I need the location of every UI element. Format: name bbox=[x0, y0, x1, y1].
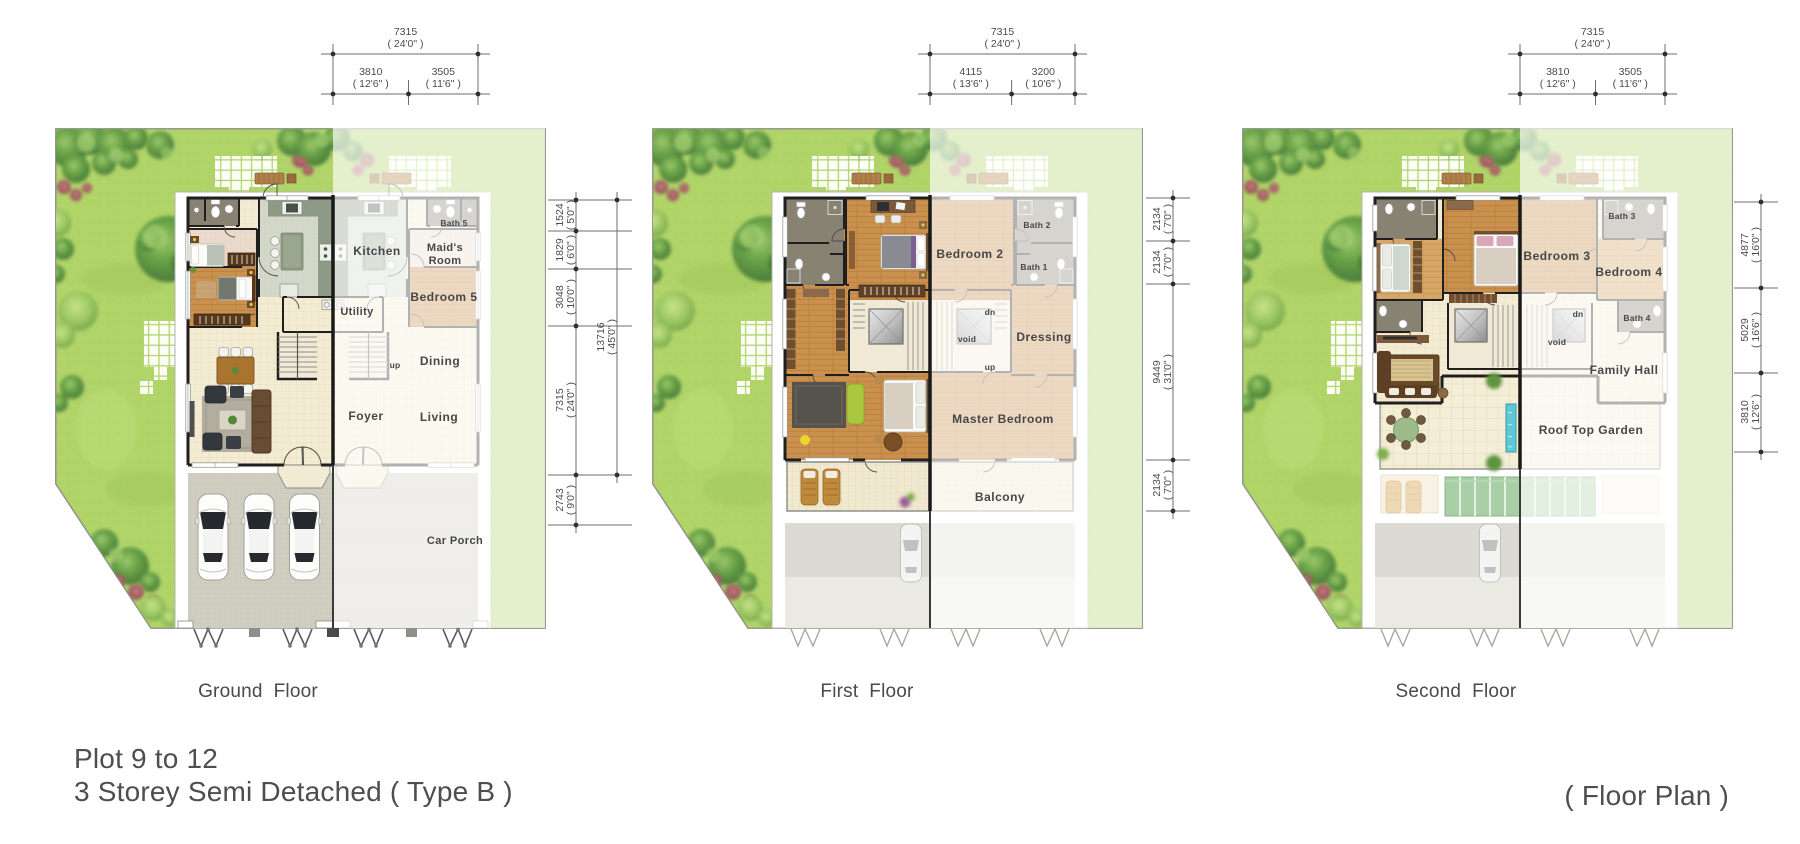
svg-text:Bedroom 5: Bedroom 5 bbox=[410, 290, 477, 304]
svg-text:void: void bbox=[1548, 337, 1566, 347]
svg-text:Utility: Utility bbox=[340, 306, 374, 318]
svg-text:3505: 3505 bbox=[432, 66, 456, 78]
svg-text:up: up bbox=[985, 362, 996, 372]
svg-text:Bedroom 4: Bedroom 4 bbox=[1595, 265, 1662, 279]
svg-text:( 11'6" ): ( 11'6" ) bbox=[426, 78, 461, 90]
svg-text:( 12'6" ): ( 12'6" ) bbox=[353, 78, 389, 90]
svg-text:void: void bbox=[958, 334, 976, 344]
svg-text:Maid's: Maid's bbox=[427, 242, 463, 254]
svg-text:2134( 7'0" ): 2134( 7'0" ) bbox=[1151, 247, 1174, 277]
svg-text:3810: 3810 bbox=[1546, 66, 1570, 78]
svg-text:7315: 7315 bbox=[1581, 26, 1605, 38]
svg-text:7315: 7315 bbox=[394, 26, 418, 38]
svg-text:3 Storey Semi Detached ( Type: 3 Storey Semi Detached ( Type B ) bbox=[74, 776, 513, 807]
svg-text:( 24'0" ): ( 24'0" ) bbox=[984, 38, 1020, 50]
svg-text:Plot 9 to 12: Plot 9 to 12 bbox=[74, 743, 218, 774]
svg-text:up: up bbox=[390, 360, 401, 370]
svg-text:13716( 45'0" ): 13716( 45'0" ) bbox=[595, 319, 618, 355]
svg-text:Bedroom 3: Bedroom 3 bbox=[1523, 249, 1590, 263]
svg-text:3505: 3505 bbox=[1619, 66, 1643, 78]
svg-text:2134( 7'0" ): 2134( 7'0" ) bbox=[1151, 204, 1174, 234]
svg-text:( 12'6" ): ( 12'6" ) bbox=[1540, 78, 1576, 90]
svg-text:Dressing: Dressing bbox=[1016, 330, 1071, 344]
svg-text:Family Hall: Family Hall bbox=[1590, 363, 1659, 377]
svg-text:Kitchen: Kitchen bbox=[353, 244, 401, 258]
svg-text:Master Bedroom: Master Bedroom bbox=[952, 412, 1054, 426]
svg-text:Room: Room bbox=[429, 255, 462, 267]
svg-text:Bath 2: Bath 2 bbox=[1023, 220, 1050, 230]
svg-text:2743( 9'0" ): 2743( 9'0" ) bbox=[554, 485, 577, 515]
svg-text:Bedroom 2: Bedroom 2 bbox=[936, 247, 1003, 261]
svg-text:( 10'6" ): ( 10'6" ) bbox=[1025, 78, 1061, 90]
svg-text:4115: 4115 bbox=[960, 66, 983, 78]
svg-text:7315: 7315 bbox=[991, 26, 1015, 38]
svg-text:( 24'0" ): ( 24'0" ) bbox=[1574, 38, 1610, 50]
svg-text:Car Porch: Car Porch bbox=[427, 535, 483, 547]
svg-text:( 11'6" ): ( 11'6" ) bbox=[1613, 78, 1648, 90]
svg-text:3810: 3810 bbox=[359, 66, 383, 78]
svg-text:( 24'0" ): ( 24'0" ) bbox=[387, 38, 423, 50]
svg-text:Roof Top Garden: Roof Top Garden bbox=[1539, 423, 1644, 437]
svg-text:Living: Living bbox=[420, 410, 458, 424]
svg-text:Bath 1: Bath 1 bbox=[1020, 262, 1047, 272]
svg-text:1829( 6'0" ): 1829( 6'0" ) bbox=[554, 235, 577, 265]
svg-text:Bath 5: Bath 5 bbox=[440, 218, 467, 228]
svg-text:3200: 3200 bbox=[1032, 66, 1056, 78]
svg-text:( 13'6" ): ( 13'6" ) bbox=[953, 78, 989, 90]
svg-text:Second Floor: Second Floor bbox=[1396, 681, 1517, 702]
svg-text:1524( 5'0" ): 1524( 5'0" ) bbox=[554, 200, 577, 230]
svg-text:Balcony: Balcony bbox=[975, 490, 1025, 504]
svg-text:First Floor: First Floor bbox=[820, 681, 914, 702]
svg-text:Bath 3: Bath 3 bbox=[1608, 211, 1635, 221]
svg-text:dn: dn bbox=[1573, 309, 1584, 319]
svg-text:Ground Floor: Ground Floor bbox=[198, 681, 318, 702]
svg-text:Dining: Dining bbox=[420, 354, 460, 368]
svg-text:dn: dn bbox=[985, 307, 996, 317]
svg-text:Foyer: Foyer bbox=[348, 409, 383, 423]
svg-text:2134( 7'0" ): 2134( 7'0" ) bbox=[1151, 470, 1174, 500]
svg-text:( Floor Plan ): ( Floor Plan ) bbox=[1564, 780, 1729, 811]
svg-text:Bath 4: Bath 4 bbox=[1623, 313, 1650, 323]
